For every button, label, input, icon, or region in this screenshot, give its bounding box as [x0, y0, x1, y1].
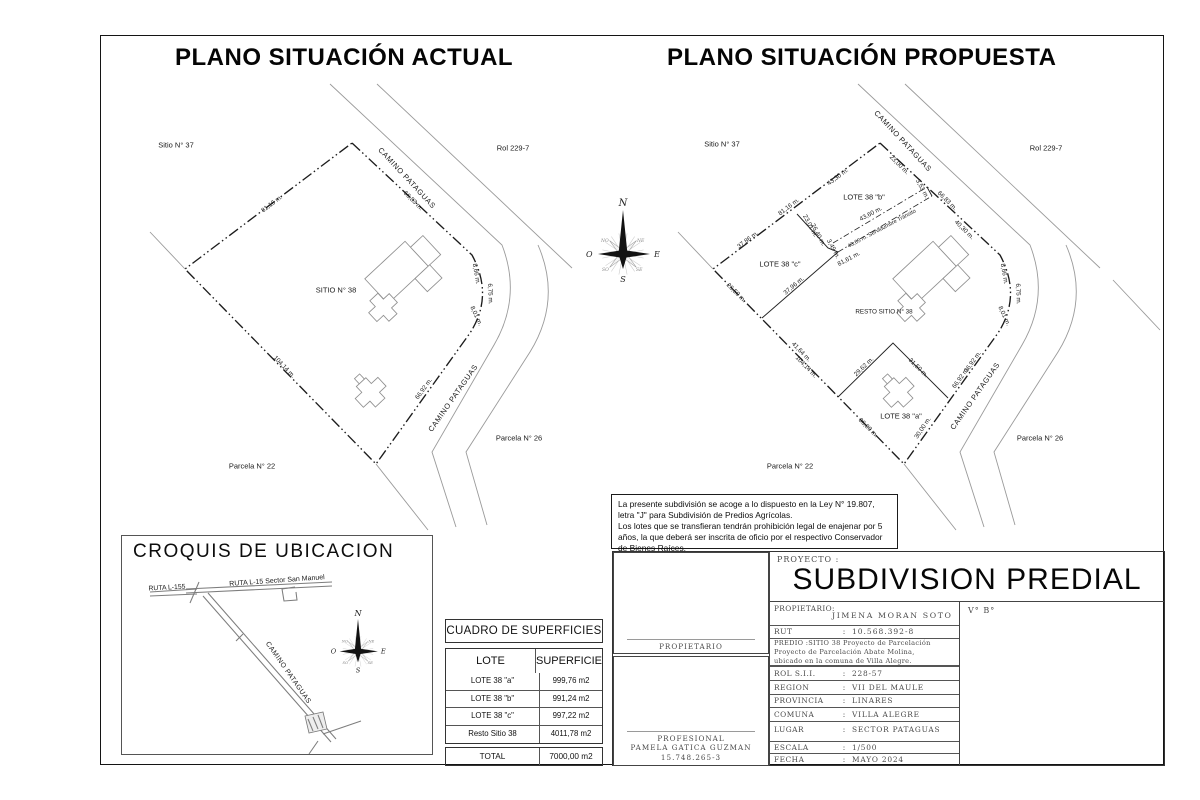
compass-ne: NE	[636, 238, 645, 244]
row-value: VII DEL MAULE	[852, 683, 924, 692]
project-title-box: PROYECTO : SUBDIVISION PREDIAL	[770, 552, 1164, 602]
croquis-compass-rose-icon: N S E O NE SE SO NO	[330, 605, 386, 683]
titleblock-row: ESCALA : 1/500	[770, 741, 959, 753]
row-label: FECHA	[770, 755, 836, 764]
cell-lote: LOTE 38 "c"	[446, 708, 540, 725]
row-value: LINARES	[852, 696, 893, 705]
road-extension-line	[1113, 280, 1160, 330]
surface-table-total-row: TOTAL 7000,00 m2	[445, 747, 603, 766]
separator: :	[836, 725, 852, 734]
project-title: SUBDIVISION PREDIAL	[770, 563, 1164, 597]
row-label: PROVINCIA	[770, 696, 836, 705]
compass-se: SE	[636, 267, 643, 273]
titleblock-row: PROVINCIA : LINARES	[770, 694, 959, 708]
predio-line: PREDIO :SITIO 38 Proyecto de Parcelación	[774, 639, 959, 648]
plan-actual-geometry	[150, 84, 572, 530]
vb-label: V° B°	[968, 606, 995, 615]
cell-superficie: 991,24 m2	[540, 691, 602, 708]
legal-note-paragraph: Los lotes que se transfieran tendrán pro…	[618, 521, 891, 554]
lote-c-se-line	[762, 252, 838, 318]
compass-o: O	[331, 648, 337, 656]
col-header-lote: LOTE	[446, 649, 536, 673]
legal-note-paragraph: La presente subdivisión se acoge a lo di…	[618, 499, 891, 521]
rut-label: RUT	[770, 627, 836, 636]
titleblock-row: REGION : VII DEL MAULE	[770, 680, 959, 694]
row-value: MAYO 2024	[852, 755, 904, 764]
predio-block: PREDIO :SITIO 38 Proyecto de Parcelación…	[770, 638, 959, 666]
table-row: Resto Sitio 38 4011,78 m2	[446, 725, 602, 743]
compass-e: E	[380, 648, 386, 656]
compass-e: E	[653, 250, 660, 259]
row-label: COMUNA	[770, 710, 836, 719]
row-label: REGION	[770, 683, 836, 692]
separator: :	[836, 710, 852, 719]
servidumbre-lower-line	[838, 196, 932, 252]
rut-row: RUT : 10.568.392-8	[770, 625, 959, 639]
surface-table-body: LOTE SUPERFICIE LOTE 38 "a" 999,76 m2 LO…	[445, 648, 603, 744]
compass-rose-icon: N S E O NE SE SO NO	[585, 192, 661, 296]
separator: :	[836, 627, 852, 636]
titleblock-row: FECHA : MAYO 2024	[770, 753, 959, 765]
compass-n: N	[618, 198, 629, 209]
plan-sheet: PLANO SITUACIÓN ACTUAL PLANO SITUACIÓN P…	[0, 0, 1200, 800]
row-label: LUGAR	[770, 725, 836, 734]
surface-table-header: LOTE SUPERFICIE	[446, 649, 602, 673]
cell-lote: LOTE 38 "b"	[446, 691, 540, 708]
separator: :	[836, 696, 852, 705]
total-label: TOTAL	[446, 748, 540, 765]
signature-line	[627, 639, 755, 640]
professional-signature-label: PROFESIONAL	[614, 734, 768, 743]
title-block: PROPIETARIO PROFESIONALPAMELA GATICA GUZ…	[612, 551, 1165, 766]
row-label: ESCALA	[770, 743, 836, 752]
cell-lote: Resto Sitio 38	[446, 726, 540, 743]
compass-se: SE	[368, 661, 374, 665]
compass-no: NO	[600, 238, 609, 244]
titleblock-row: ROL S.I.I. : 228-57	[770, 666, 959, 680]
plan-propuesta-geometry	[678, 84, 1100, 530]
cell-superficie: 997,22 m2	[540, 708, 602, 725]
servidumbre-upper-line	[833, 187, 927, 243]
titleblock-row: LUGAR : SECTOR PATAGUAS	[770, 721, 959, 742]
total-value: 7000,00 m2	[540, 748, 602, 765]
compass-o: O	[586, 250, 593, 259]
row-value: 228-57	[852, 669, 883, 678]
table-row: LOTE 38 "a" 999,76 m2	[446, 673, 602, 690]
legal-note: La presente subdivisión se acoge a lo di…	[611, 494, 898, 549]
separator: :	[836, 755, 852, 764]
surface-table-title: CUADRO DE SUPERFICIES	[445, 619, 603, 643]
compass-n: N	[353, 608, 362, 618]
compass-s: S	[620, 275, 626, 284]
professional-signature-lines: PROFESIONALPAMELA GATICA GUZMAN15.748.26…	[614, 734, 768, 762]
predio-line: ubicado en la comuna de Villa Alegre.	[774, 657, 959, 666]
rut-value: 10.568.392-8	[852, 627, 914, 636]
owner-signature-label: PROPIETARIO	[614, 642, 768, 651]
title-block-right: PROYECTO : SUBDIVISION PREDIAL PROPIETAR…	[769, 552, 1164, 765]
professional-signature-label: PAMELA GATICA GUZMAN	[614, 743, 768, 752]
compass-no: NO	[341, 640, 348, 644]
row-value: SECTOR PATAGUAS	[852, 725, 940, 734]
cell-superficie: 999,76 m2	[540, 673, 602, 690]
scale-date-rows: ESCALA : 1/500 FECHA : MAYO 2024	[770, 741, 959, 765]
signature-line	[627, 731, 755, 732]
compass-so: SO	[602, 267, 609, 273]
cell-lote: LOTE 38 "a"	[446, 673, 540, 690]
owner-label: PROPIETARIO:	[774, 604, 835, 613]
info-rows: ROL S.I.I. : 228-57 REGION : VII DEL MAU…	[770, 666, 959, 742]
professional-signature-label: 15.748.265-3	[614, 753, 768, 762]
croquis-title: CROQUIS DE UBICACION	[133, 541, 394, 563]
vb-approval-box: V° B°	[959, 601, 1164, 765]
owner-signature-box: PROPIETARIO	[613, 552, 769, 654]
surface-table-rows: LOTE 38 "a" 999,76 m2 LOTE 38 "b" 991,24…	[446, 673, 602, 743]
table-row: LOTE 38 "c" 997,22 m2	[446, 707, 602, 725]
compass-ne: NE	[367, 640, 374, 644]
surface-table: CUADRO DE SUPERFICIES LOTE SUPERFICIE LO…	[445, 619, 603, 766]
titleblock-row: COMUNA : VILLA ALEGRE	[770, 707, 959, 721]
owner-row: PROPIETARIO: JIMENA MORAN SOTO	[770, 601, 959, 626]
row-label: ROL S.I.I.	[770, 669, 836, 678]
title-block-rows: PROPIETARIO: JIMENA MORAN SOTO RUT : 10.…	[770, 601, 959, 765]
professional-signature-box: PROFESIONALPAMELA GATICA GUZMAN15.748.26…	[613, 656, 769, 766]
predio-line: Proyecto de Parcelación Abate Molina,	[774, 648, 959, 657]
table-row: LOTE 38 "b" 991,24 m2	[446, 690, 602, 708]
compass-so: SO	[343, 661, 349, 665]
row-value: 1/500	[852, 743, 877, 752]
separator: :	[836, 743, 852, 752]
separator: :	[836, 669, 852, 678]
separator: :	[836, 683, 852, 692]
lote-b-sw-line	[797, 214, 838, 252]
owner-name: JIMENA MORAN SOTO	[832, 611, 953, 620]
cell-superficie: 4011,78 m2	[540, 726, 602, 743]
col-header-superficie: SUPERFICIE	[536, 649, 602, 673]
row-value: VILLA ALEGRE	[852, 710, 920, 719]
compass-s: S	[356, 667, 361, 675]
croquis-box: CROQUIS DE UBICACION	[121, 535, 433, 755]
